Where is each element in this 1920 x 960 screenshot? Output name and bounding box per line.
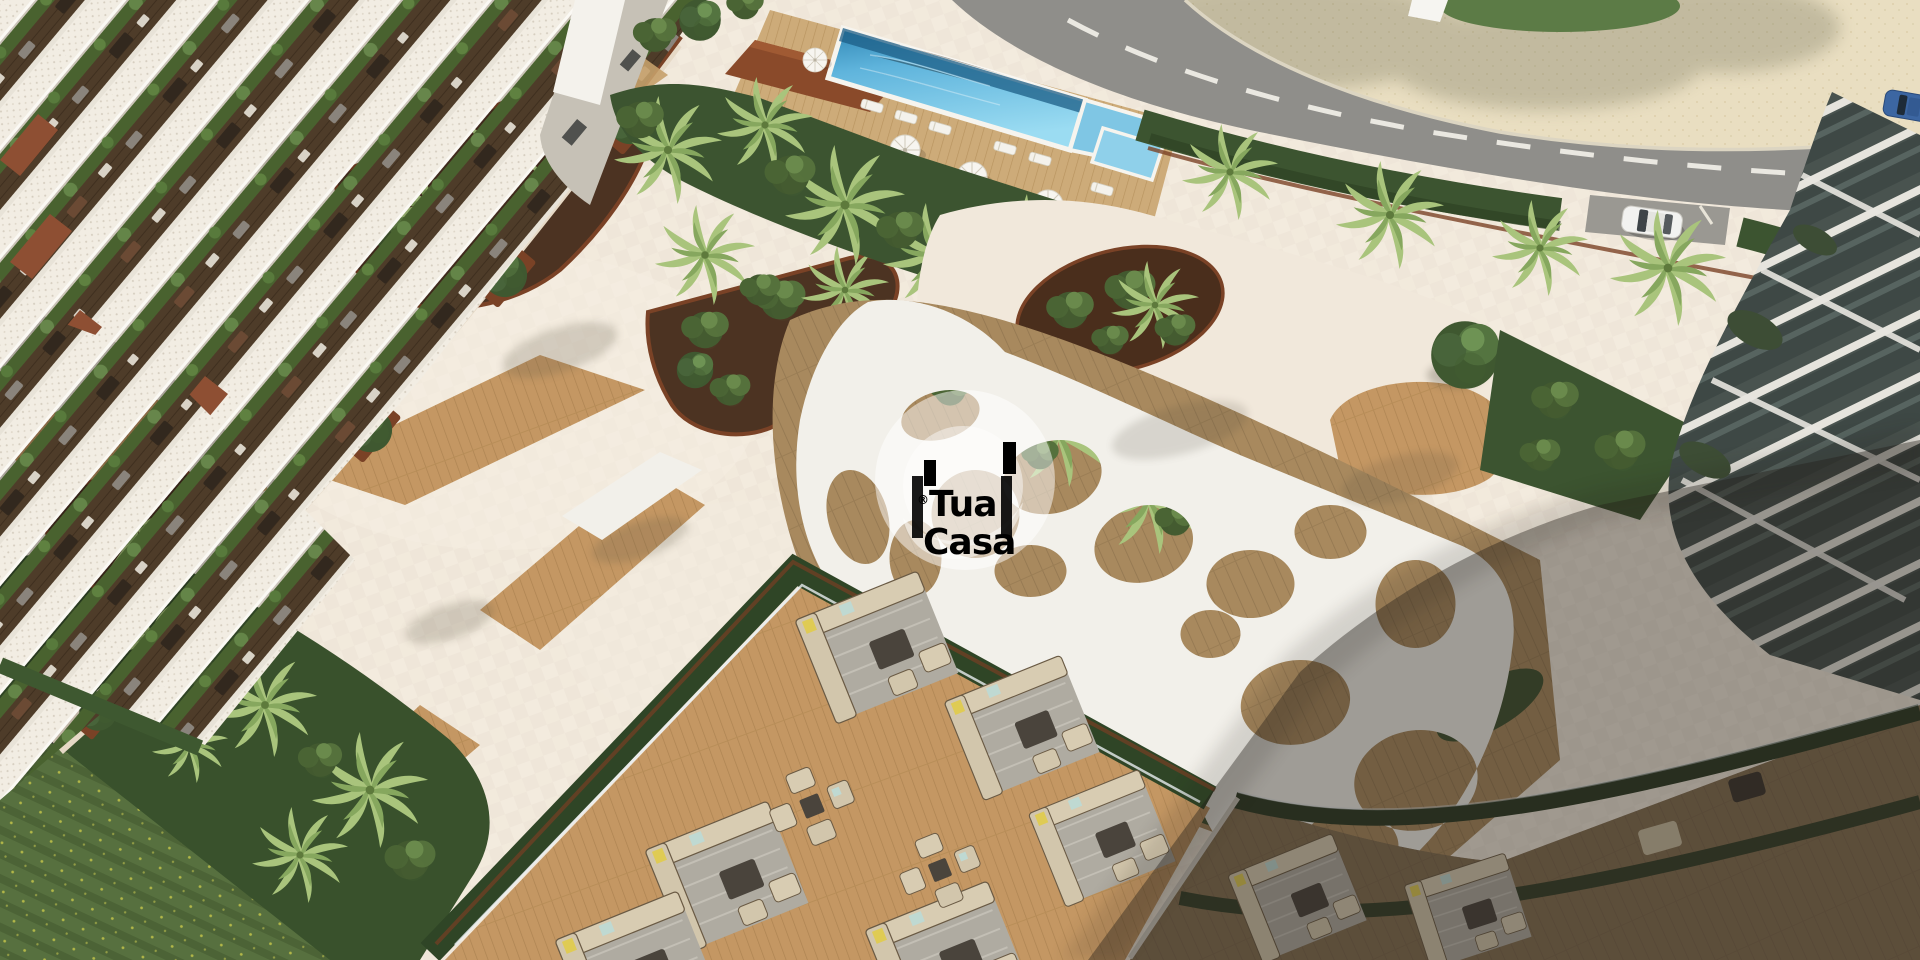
watermark-word-casa: Casa — [923, 522, 1015, 563]
render-canvas: ® Tua Casa — [0, 0, 1920, 960]
watermark-word-tua: Tua — [929, 484, 997, 525]
registered-mark: ® — [917, 493, 929, 507]
tua-casa-watermark: ® Tua Casa — [875, 390, 1055, 570]
logo-orange-wall — [1003, 442, 1016, 474]
garden-tree — [1431, 321, 1499, 389]
logo-teal-wall — [924, 460, 936, 486]
logo-left-wall — [912, 476, 923, 538]
architectural-render: ® Tua Casa — [0, 0, 1920, 960]
